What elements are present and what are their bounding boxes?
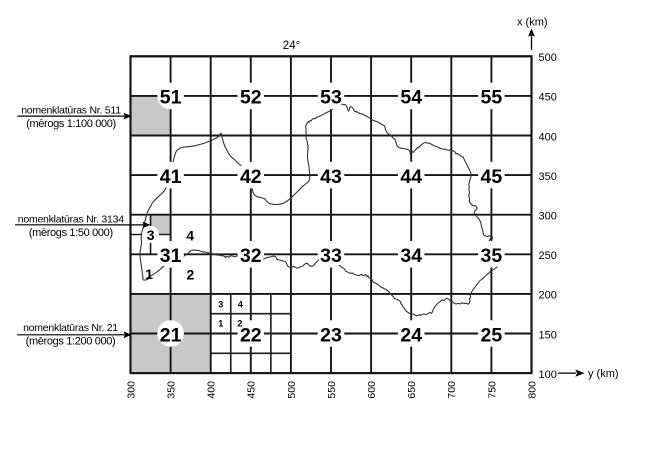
svg-text:22: 22 xyxy=(240,324,262,346)
svg-text:4: 4 xyxy=(238,299,243,309)
svg-text:450: 450 xyxy=(539,92,557,104)
svg-text:750: 750 xyxy=(486,381,498,399)
svg-text:2: 2 xyxy=(237,319,242,329)
svg-text:3: 3 xyxy=(147,227,155,243)
svg-text:32: 32 xyxy=(240,245,262,267)
svg-text:600: 600 xyxy=(366,381,378,399)
svg-text:51: 51 xyxy=(160,87,182,109)
svg-text:3: 3 xyxy=(218,299,223,309)
svg-text:(mērogs 1:50 000): (mērogs 1:50 000) xyxy=(29,227,113,239)
svg-text:350: 350 xyxy=(166,381,178,399)
svg-text:24: 24 xyxy=(400,324,422,346)
svg-text:55: 55 xyxy=(481,87,503,109)
svg-text:41: 41 xyxy=(160,166,182,188)
svg-text:1: 1 xyxy=(218,319,223,329)
svg-text:100: 100 xyxy=(539,369,557,381)
svg-text:400: 400 xyxy=(539,131,557,143)
svg-text:800: 800 xyxy=(526,381,538,399)
svg-text:52: 52 xyxy=(240,87,262,109)
svg-text:1: 1 xyxy=(145,266,153,282)
svg-text:150: 150 xyxy=(539,329,557,341)
svg-text:24°: 24° xyxy=(283,40,300,52)
svg-text:44: 44 xyxy=(400,166,422,188)
svg-text:x (km): x (km) xyxy=(517,17,548,29)
svg-text:31: 31 xyxy=(160,245,182,267)
svg-text:300: 300 xyxy=(125,381,137,399)
svg-text:nomenklatūras Nr. 3134: nomenklatūras Nr. 3134 xyxy=(18,213,124,225)
svg-text:33: 33 xyxy=(320,245,342,267)
svg-text:2: 2 xyxy=(187,267,195,283)
svg-text:43: 43 xyxy=(320,166,342,188)
svg-text:(mērogs 1:100 000): (mērogs 1:100 000) xyxy=(26,118,116,130)
svg-text:21: 21 xyxy=(160,324,182,346)
svg-text:500: 500 xyxy=(539,52,557,64)
svg-text:450: 450 xyxy=(246,381,258,399)
svg-text:4: 4 xyxy=(186,227,194,243)
svg-text:45: 45 xyxy=(481,166,503,188)
svg-text:34: 34 xyxy=(400,245,422,267)
svg-text:400: 400 xyxy=(206,381,218,399)
svg-text:(mērogs 1:200 000): (mērogs 1:200 000) xyxy=(26,336,116,348)
svg-text:200: 200 xyxy=(539,290,557,302)
svg-text:42: 42 xyxy=(240,166,262,188)
svg-text:54: 54 xyxy=(400,87,422,109)
svg-text:y (km): y (km) xyxy=(588,368,619,380)
svg-text:300: 300 xyxy=(539,211,557,223)
svg-text:350: 350 xyxy=(539,171,557,183)
svg-text:250: 250 xyxy=(539,250,557,262)
svg-text:53: 53 xyxy=(320,87,342,109)
svg-text:23: 23 xyxy=(320,324,342,346)
svg-text:700: 700 xyxy=(446,381,458,399)
svg-text:550: 550 xyxy=(326,381,338,399)
svg-text:nomenklatūras Nr. 511: nomenklatūras Nr. 511 xyxy=(21,105,121,117)
svg-text:35: 35 xyxy=(481,245,503,267)
svg-text:25: 25 xyxy=(481,324,503,346)
svg-text:nomenklatūras Nr. 21: nomenklatūras Nr. 21 xyxy=(23,322,118,334)
svg-text:650: 650 xyxy=(406,381,418,399)
svg-text:500: 500 xyxy=(286,381,298,399)
